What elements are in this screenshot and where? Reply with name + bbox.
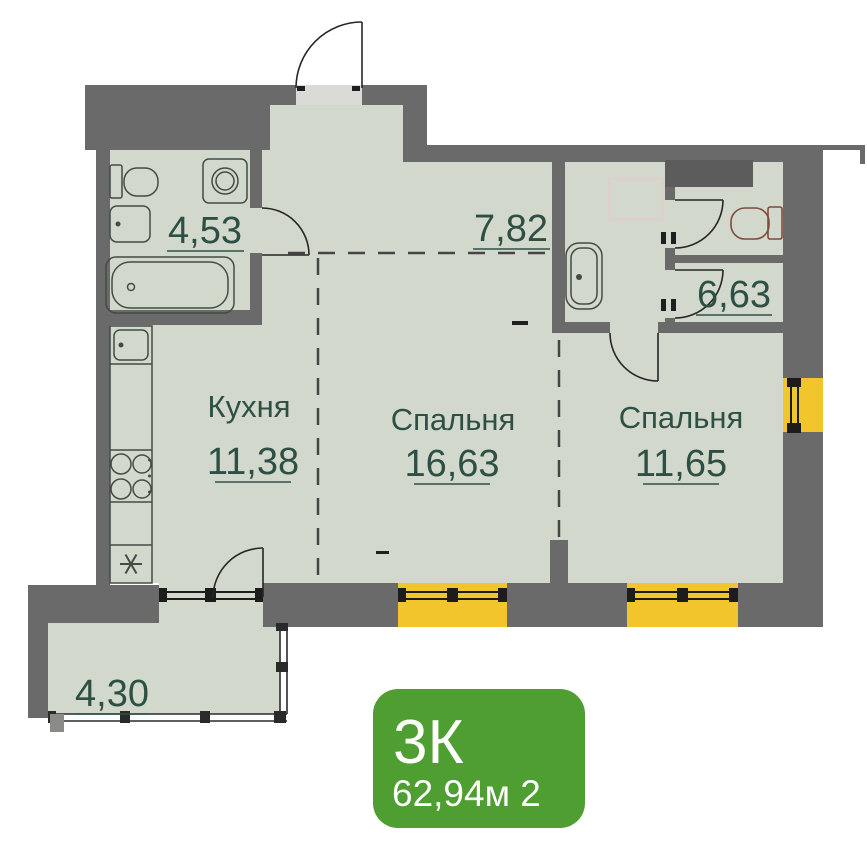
wall-wc-divider <box>675 255 783 263</box>
badge-rooms-count: 3К <box>393 708 464 777</box>
bedroom-center-name: Спальня <box>391 402 516 437</box>
hallway-area: 7,82 <box>474 208 548 250</box>
kitchen-name: Кухня <box>208 389 291 424</box>
wall-left <box>96 85 110 585</box>
apartment-badge: 3К 62,94м 2 <box>373 689 585 828</box>
bedroom-center-area: 16,63 <box>404 443 499 485</box>
badge-total-area: 62,94м 2 <box>392 773 541 814</box>
wall-tubroom-left <box>552 162 565 330</box>
wall-bottom-a <box>263 583 398 627</box>
floor-right-wing <box>403 162 783 583</box>
vent-shaft <box>665 160 753 187</box>
wall-bath-right-bottom <box>250 253 262 313</box>
wall-balcony-left <box>28 623 48 718</box>
wall-tubroom-right-2 <box>665 248 675 270</box>
balcony-area: 4,30 <box>75 673 149 715</box>
wall-entry-jamb-left <box>270 85 296 105</box>
wall-bottom-b <box>507 583 627 627</box>
wall-neighbor-tick-v <box>860 145 865 164</box>
bedroom-right-area: 11,65 <box>635 443 727 485</box>
entrance-door <box>296 22 362 88</box>
wall-bath-right-top <box>250 150 262 208</box>
bathroom-main-area: 4,53 <box>168 210 242 252</box>
wall-tubroom-bottom <box>552 322 610 333</box>
floor-plan: 4,53 7,82 6,63 Кухня 11,38 Спальня 16,63… <box>0 0 867 864</box>
wall-entry-jog <box>403 105 427 147</box>
wall-top-left-block <box>85 85 270 150</box>
wall-bedroom-right-top <box>658 322 783 333</box>
wall-balcony-top <box>28 585 159 623</box>
wall-entry-jamb-right <box>362 85 427 105</box>
balcony-glazing-endcap <box>50 714 64 732</box>
wall-bottom-c <box>738 583 783 627</box>
bedroom-right-name: Спальня <box>619 400 744 435</box>
floor-plan-page: 4,53 7,82 6,63 Кухня 11,38 Спальня 16,63… <box>0 0 867 864</box>
bathroom-small-area: 6,63 <box>697 274 771 316</box>
wall-stub-bedrooms <box>550 540 568 583</box>
wall-top-band <box>403 145 783 162</box>
wall-neighbor-tick-h <box>823 145 865 150</box>
kitchen-area: 11,38 <box>207 441 299 483</box>
